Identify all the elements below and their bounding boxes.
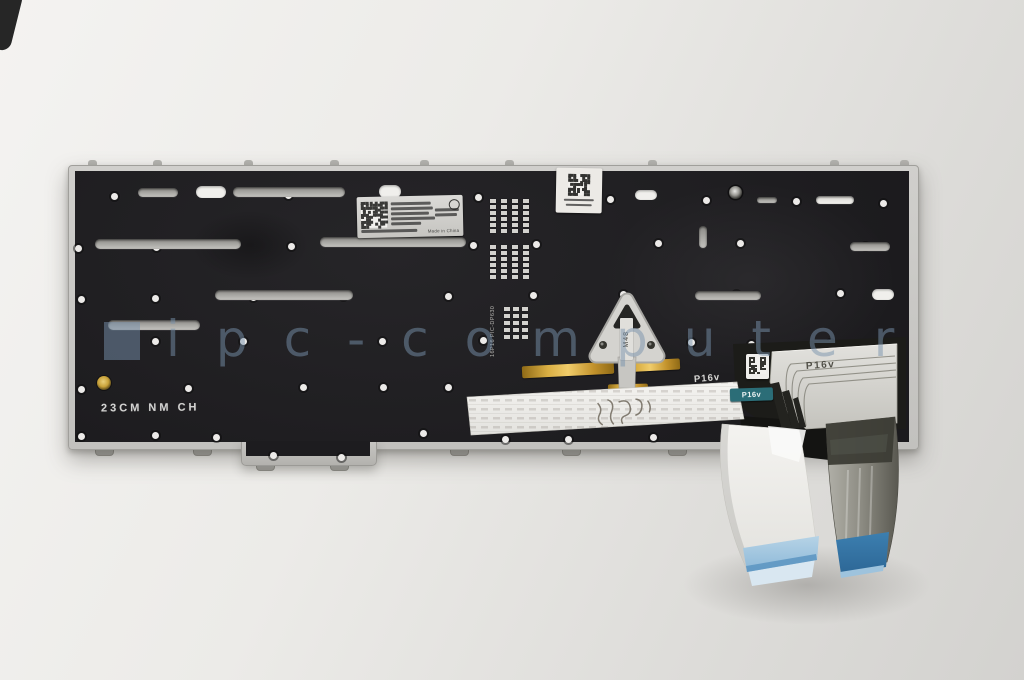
qr-module [753, 361, 755, 363]
triangle-bracket-sticker: M48 [620, 318, 633, 360]
dark-ribbon-cable [826, 417, 898, 578]
vertical-code-marking: 16P16 PIC-DP630 [491, 303, 497, 357]
stencil-marking: 23CM NM CH [101, 402, 200, 414]
qr-code [749, 357, 766, 374]
silver-flex-fold [770, 344, 897, 430]
teal-sticker-text: P16v [742, 390, 762, 398]
backlight-ribbon [467, 382, 744, 435]
qr-module [758, 372, 760, 374]
teal-connector-sticker: P16v [730, 387, 773, 401]
flex-white-marking: P16v [694, 373, 721, 385]
qr-module [762, 365, 764, 367]
qr-module [764, 368, 766, 370]
triangle-sticker-text: M48 [623, 331, 630, 348]
qr-module [753, 372, 755, 374]
qr-code-sticker-small [746, 354, 769, 379]
flex-fold-marking: P16v [806, 360, 836, 372]
qr-module [755, 365, 757, 367]
qr-module [764, 363, 766, 365]
photo-background: Made in China [0, 0, 1024, 680]
